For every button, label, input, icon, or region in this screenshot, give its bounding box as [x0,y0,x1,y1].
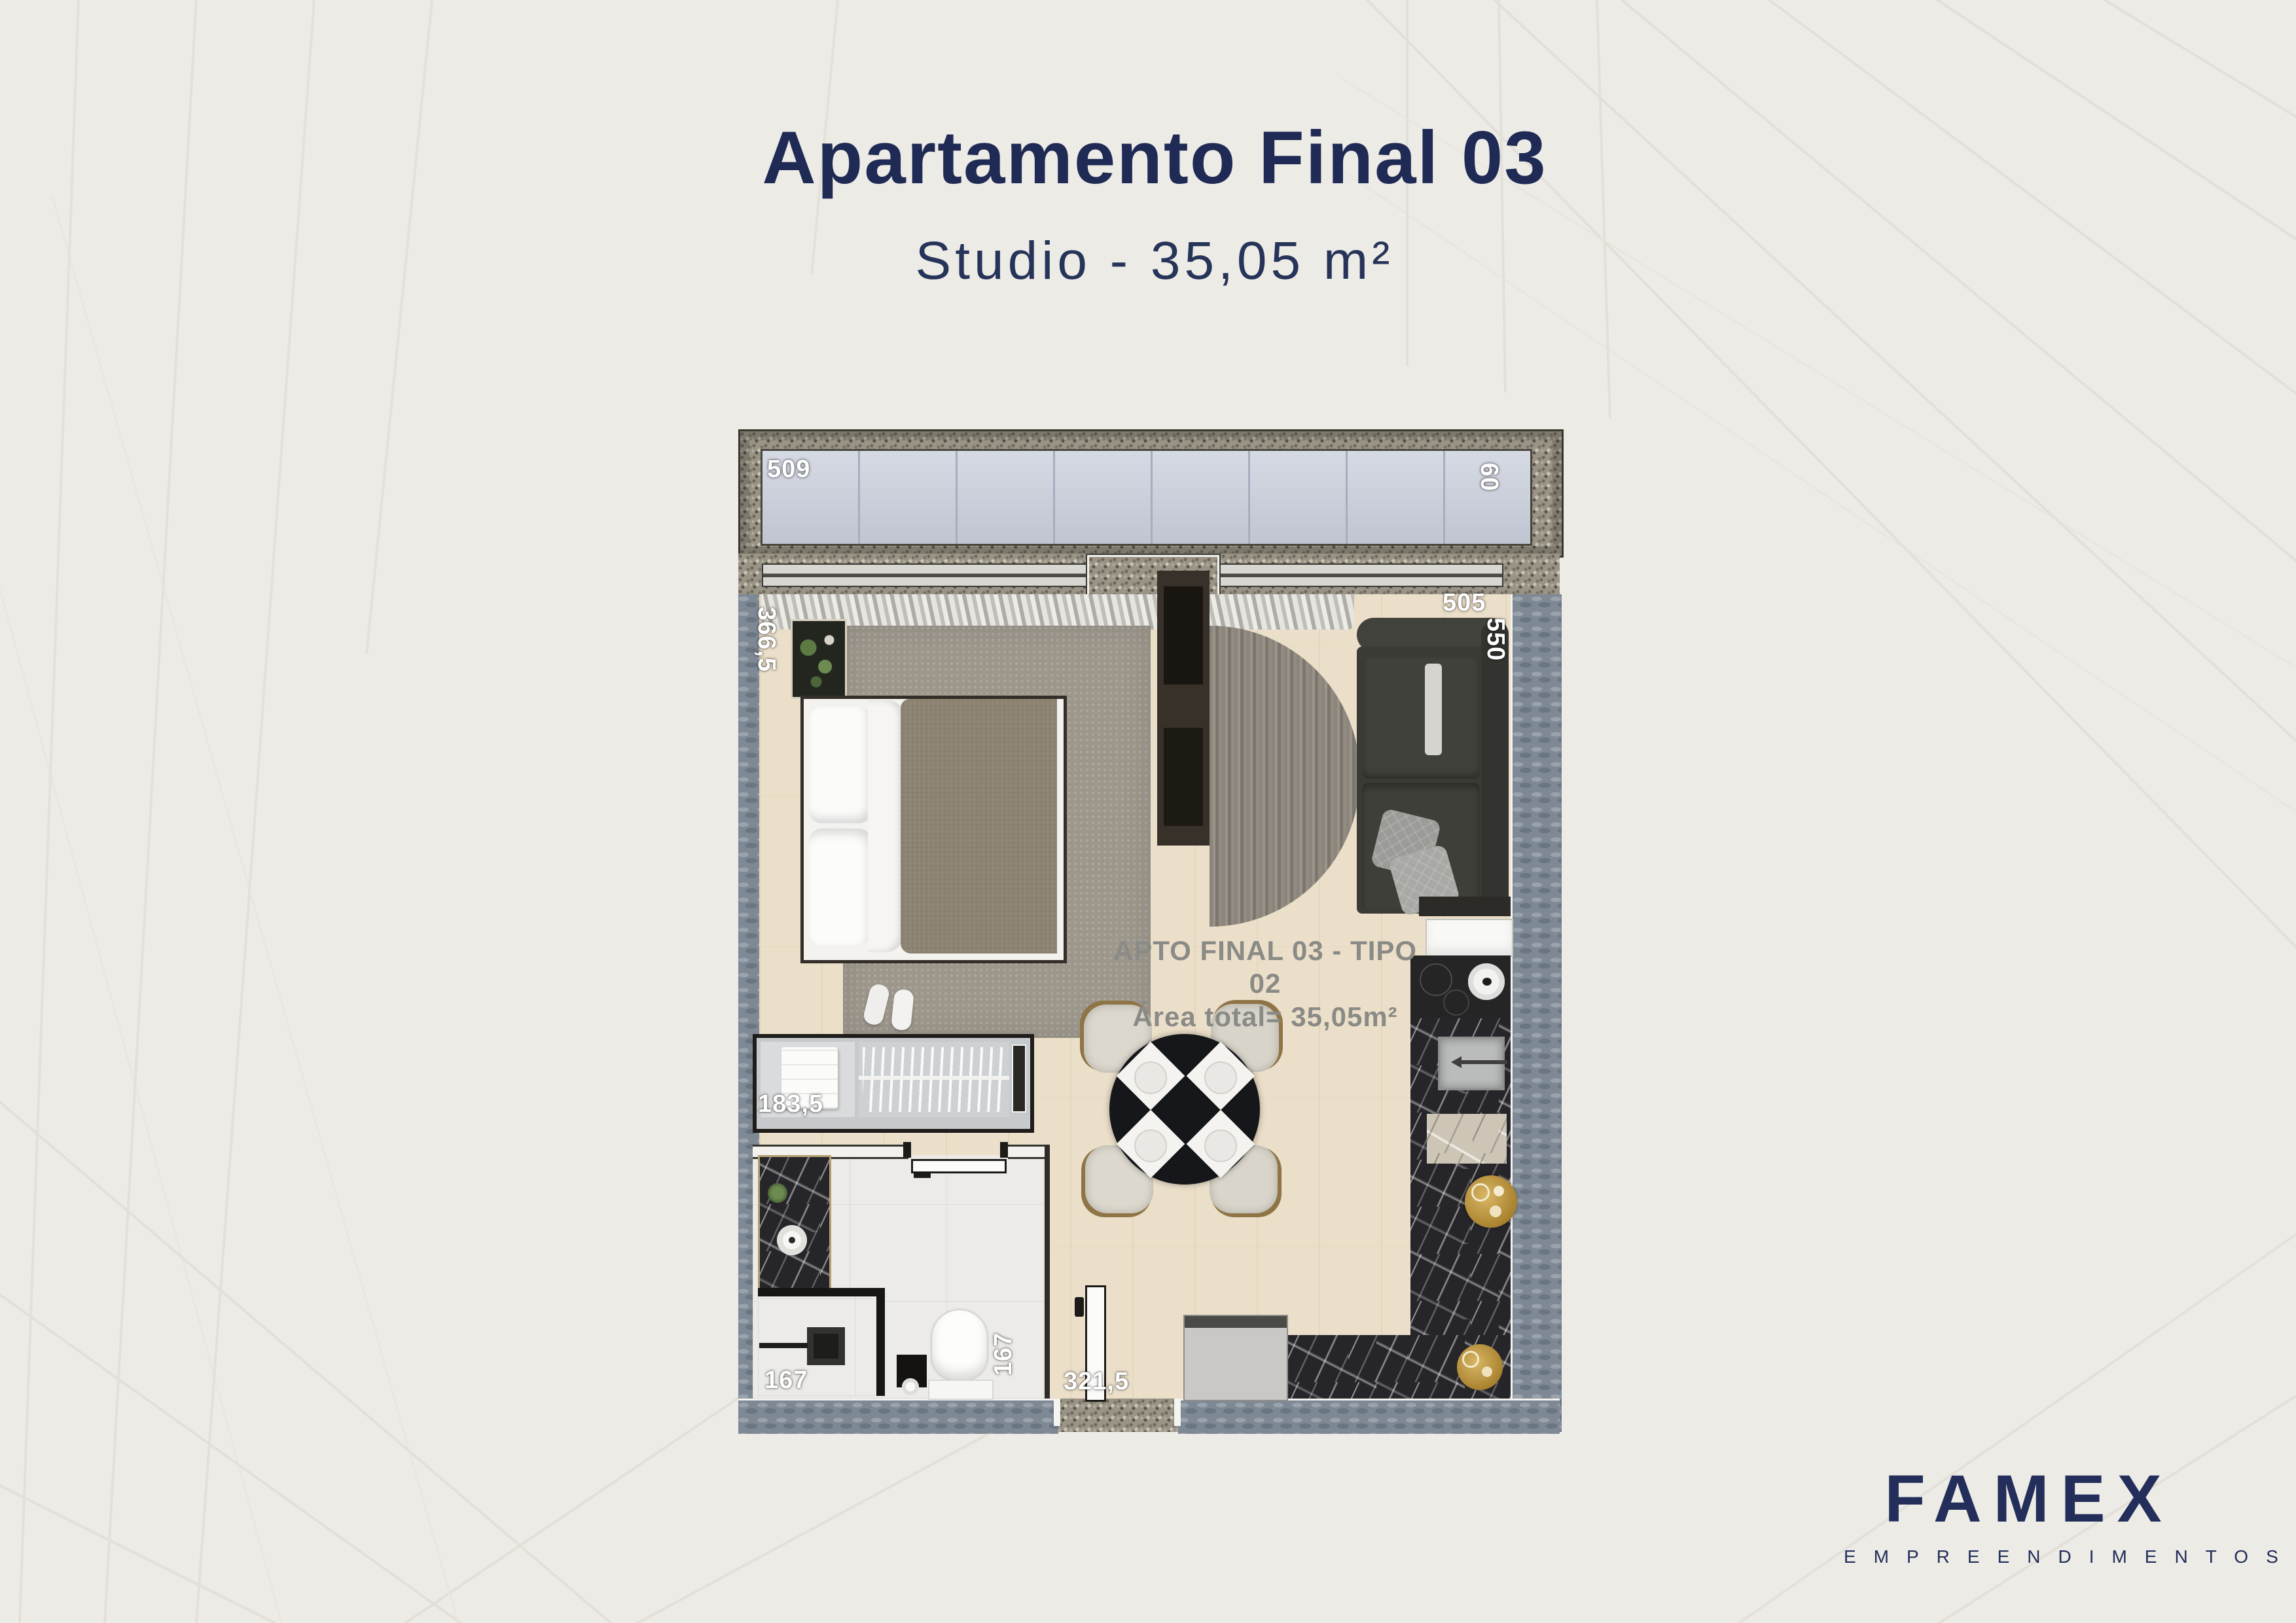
kitchen-counter-bottom [1288,1335,1511,1399]
plant-box [791,619,847,699]
entry-threshold [1058,1399,1178,1432]
kitchen-faucet [1456,1060,1507,1064]
shower-frame [876,1288,885,1396]
dim-living-width: 505 [1443,589,1486,617]
dim-balcony-depth: 60 [1475,435,1503,520]
unit-caption: APTO FINAL 03 - TIPO 02 Área total= 35,0… [1095,935,1435,1033]
closet-hanging-compartment [859,1042,1009,1117]
unit-caption-line2: Área total= 35,05m² [1095,1001,1435,1033]
dim-text: 60 [1475,463,1503,491]
plate [1128,1122,1174,1169]
brand-logo: FAMEX EMPREENDIMENTOS [1826,1461,2232,1567]
entry-door-handle [1075,1297,1084,1317]
page-subtitle: Studio - 35,05 m² [657,230,1652,292]
bed-blanket [901,699,1057,954]
tv-panel-shelf [1164,586,1203,685]
fridge [1426,919,1513,957]
brand-tagline: EMPREENDIMENTOS [1826,1546,2232,1567]
bed-pillow [809,829,872,945]
wall-bottom-right [1178,1399,1560,1434]
gold-plate-dish [1471,1183,1490,1202]
dim-bathroom-depth: 167 [990,1311,1017,1397]
floorplan-sheet: Apartamento Final 03 Studio - 35,05 m² [0,0,2296,1623]
vanity-sink-drain [789,1237,795,1243]
dining-table [1109,1034,1260,1185]
gold-plate-dish [1494,1186,1504,1196]
toilet-bowl [932,1310,987,1380]
dim-text: 167 [990,1332,1018,1376]
dim-balcony-width: 509 [767,455,810,484]
bed [800,696,1067,963]
bathroom-door-jamb [1000,1142,1008,1158]
sofa-seat-cushion [1362,657,1480,779]
gold-plate-dish [1462,1351,1479,1368]
closet-side-unit [1012,1044,1026,1113]
window-right [1215,563,1503,587]
plate [1198,1054,1244,1101]
gold-plate-decor [1457,1344,1503,1390]
plate [1128,1054,1174,1101]
dim-closet-width: 183,5 [758,1090,823,1118]
washing-machine-panel [1185,1316,1287,1328]
dim-text: 550 [1482,618,1510,661]
window-left [762,563,1090,587]
dim-living-depth: 550 [1482,597,1509,682]
page-title: Apartamento Final 03 [657,115,1652,201]
cooktop-vent-center [1482,978,1492,986]
gold-plate-dish [1490,1205,1501,1217]
curtain [762,594,1354,630]
toilet-tank [928,1380,994,1400]
wall-right [1511,594,1562,1432]
plate [1198,1122,1244,1169]
gold-plate-decor [1465,1175,1517,1228]
shower-drain-plate [807,1327,845,1365]
floorplan: APTO FINAL 03 - TIPO 02 Área total= 35,0… [738,429,1560,1432]
unit-caption-line1: APTO FINAL 03 - TIPO 02 [1095,935,1435,1001]
bathroom-door-handle [914,1173,931,1178]
entry-jamb [1174,1399,1181,1426]
shower-bar [759,1343,808,1348]
dim-entry-width: 321,5 [1064,1368,1129,1396]
entry-jamb [1054,1399,1060,1426]
bed-pillow [809,707,872,823]
wall-bottom-left [738,1399,1058,1434]
closet-rod [859,1076,1009,1080]
vanity-plant [768,1183,787,1203]
bathroom-wall-right [1045,1145,1050,1399]
bathroom-wall-top [1008,1145,1049,1159]
kitchen-faucet-head [1451,1056,1462,1068]
counter-cutting-board [1427,1114,1507,1164]
bed-sheet [868,700,905,952]
tv-panel [1157,571,1210,846]
brand-name: FAMEX [1826,1461,2232,1537]
bathroom-door-jamb [903,1142,911,1158]
sofa-throw-blanket [1425,664,1442,755]
toilet-paper-roll [902,1378,919,1395]
kitchen-console [1419,897,1511,916]
bathroom-vanity [758,1155,831,1290]
balcony-floor-glass [761,449,1532,546]
gold-plate-dish [1482,1366,1492,1377]
bathroom-door-leaf [911,1159,1007,1173]
dim-bedroom-width: 366,5 [753,597,780,682]
cooktop-burner [1443,990,1469,1016]
tv-panel-shelf [1164,728,1203,826]
washing-machine [1183,1315,1288,1401]
shower-frame [758,1288,885,1296]
dim-bathroom-width: 167 [764,1366,808,1395]
dim-text: 366,5 [753,607,781,672]
